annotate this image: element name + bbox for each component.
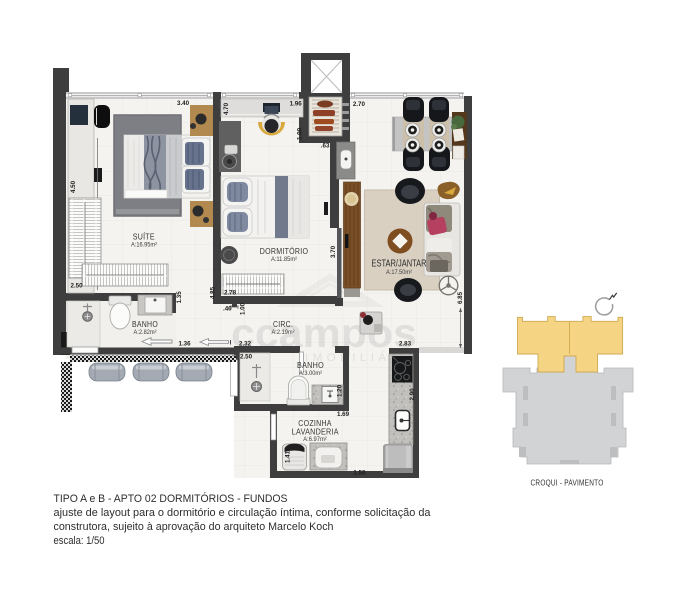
svg-text:1.41: 1.41 (285, 450, 292, 463)
svg-text:BANHO: BANHO (132, 320, 158, 329)
svg-text:.46: .46 (223, 306, 232, 313)
svg-text:3.40: 3.40 (177, 100, 190, 107)
svg-text:construtora, sujeito à aprovaç: construtora, sujeito à aprovação do arqu… (54, 521, 334, 533)
svg-text:A:3.00m²: A:3.00m² (299, 370, 322, 377)
svg-text:1.96: 1.96 (290, 101, 303, 108)
svg-text:1.35: 1.35 (176, 291, 183, 304)
svg-text:A:2.19m²: A:2.19m² (272, 329, 295, 336)
svg-text:6.85: 6.85 (457, 291, 464, 304)
svg-text:1.00: 1.00 (240, 302, 247, 315)
svg-text:A:2.82m²: A:2.82m² (134, 329, 157, 336)
svg-text:1.50: 1.50 (353, 470, 366, 477)
svg-text:A:16.95m²: A:16.95m² (131, 242, 157, 249)
svg-text:ESTAR/JANTAR: ESTAR/JANTAR (372, 258, 427, 270)
svg-text:4.50: 4.50 (70, 180, 77, 193)
svg-text:1.69: 1.69 (337, 411, 350, 418)
svg-text:A:11.85m²: A:11.85m² (271, 256, 297, 263)
svg-text:2.50: 2.50 (71, 283, 84, 290)
svg-text:2.70: 2.70 (353, 101, 366, 108)
svg-text:.63: .63 (321, 142, 330, 149)
svg-text:TIPO A e B - APTO 02 DORMITÓR: TIPO A e B - APTO 02 DORMITÓRIOS - FUNDO… (54, 492, 288, 505)
svg-text:2.78: 2.78 (224, 290, 237, 297)
svg-text:CIRC.: CIRC. (273, 320, 293, 329)
svg-text:CROQUI - PAVIMENTO: CROQUI - PAVIMENTO (531, 478, 604, 488)
svg-text:2.50: 2.50 (240, 354, 253, 361)
svg-text:A:17.50m²: A:17.50m² (386, 269, 412, 276)
svg-text:4.85: 4.85 (210, 286, 217, 299)
svg-text:1.00: 1.00 (297, 127, 304, 140)
svg-text:COZINHA: COZINHA (298, 419, 332, 428)
svg-text:BANHO: BANHO (297, 361, 324, 370)
svg-text:SUÍTE: SUÍTE (133, 232, 155, 241)
svg-text:4.70: 4.70 (223, 102, 230, 115)
svg-text:3.70: 3.70 (330, 245, 337, 258)
svg-text:DORMITÓRIO: DORMITÓRIO (260, 247, 309, 256)
svg-text:escala: 1/50: escala: 1/50 (54, 535, 105, 547)
svg-text:ajuste de layout para o dormit: ajuste de layout para o dormitório e cir… (54, 507, 431, 519)
svg-text:2.90: 2.90 (409, 388, 416, 401)
svg-text:1.20: 1.20 (337, 384, 344, 397)
svg-text:2.32: 2.32 (239, 341, 252, 348)
svg-text:A:6.97m²: A:6.97m² (303, 436, 327, 443)
svg-text:2.83: 2.83 (399, 341, 412, 348)
svg-text:1.36: 1.36 (179, 341, 192, 348)
